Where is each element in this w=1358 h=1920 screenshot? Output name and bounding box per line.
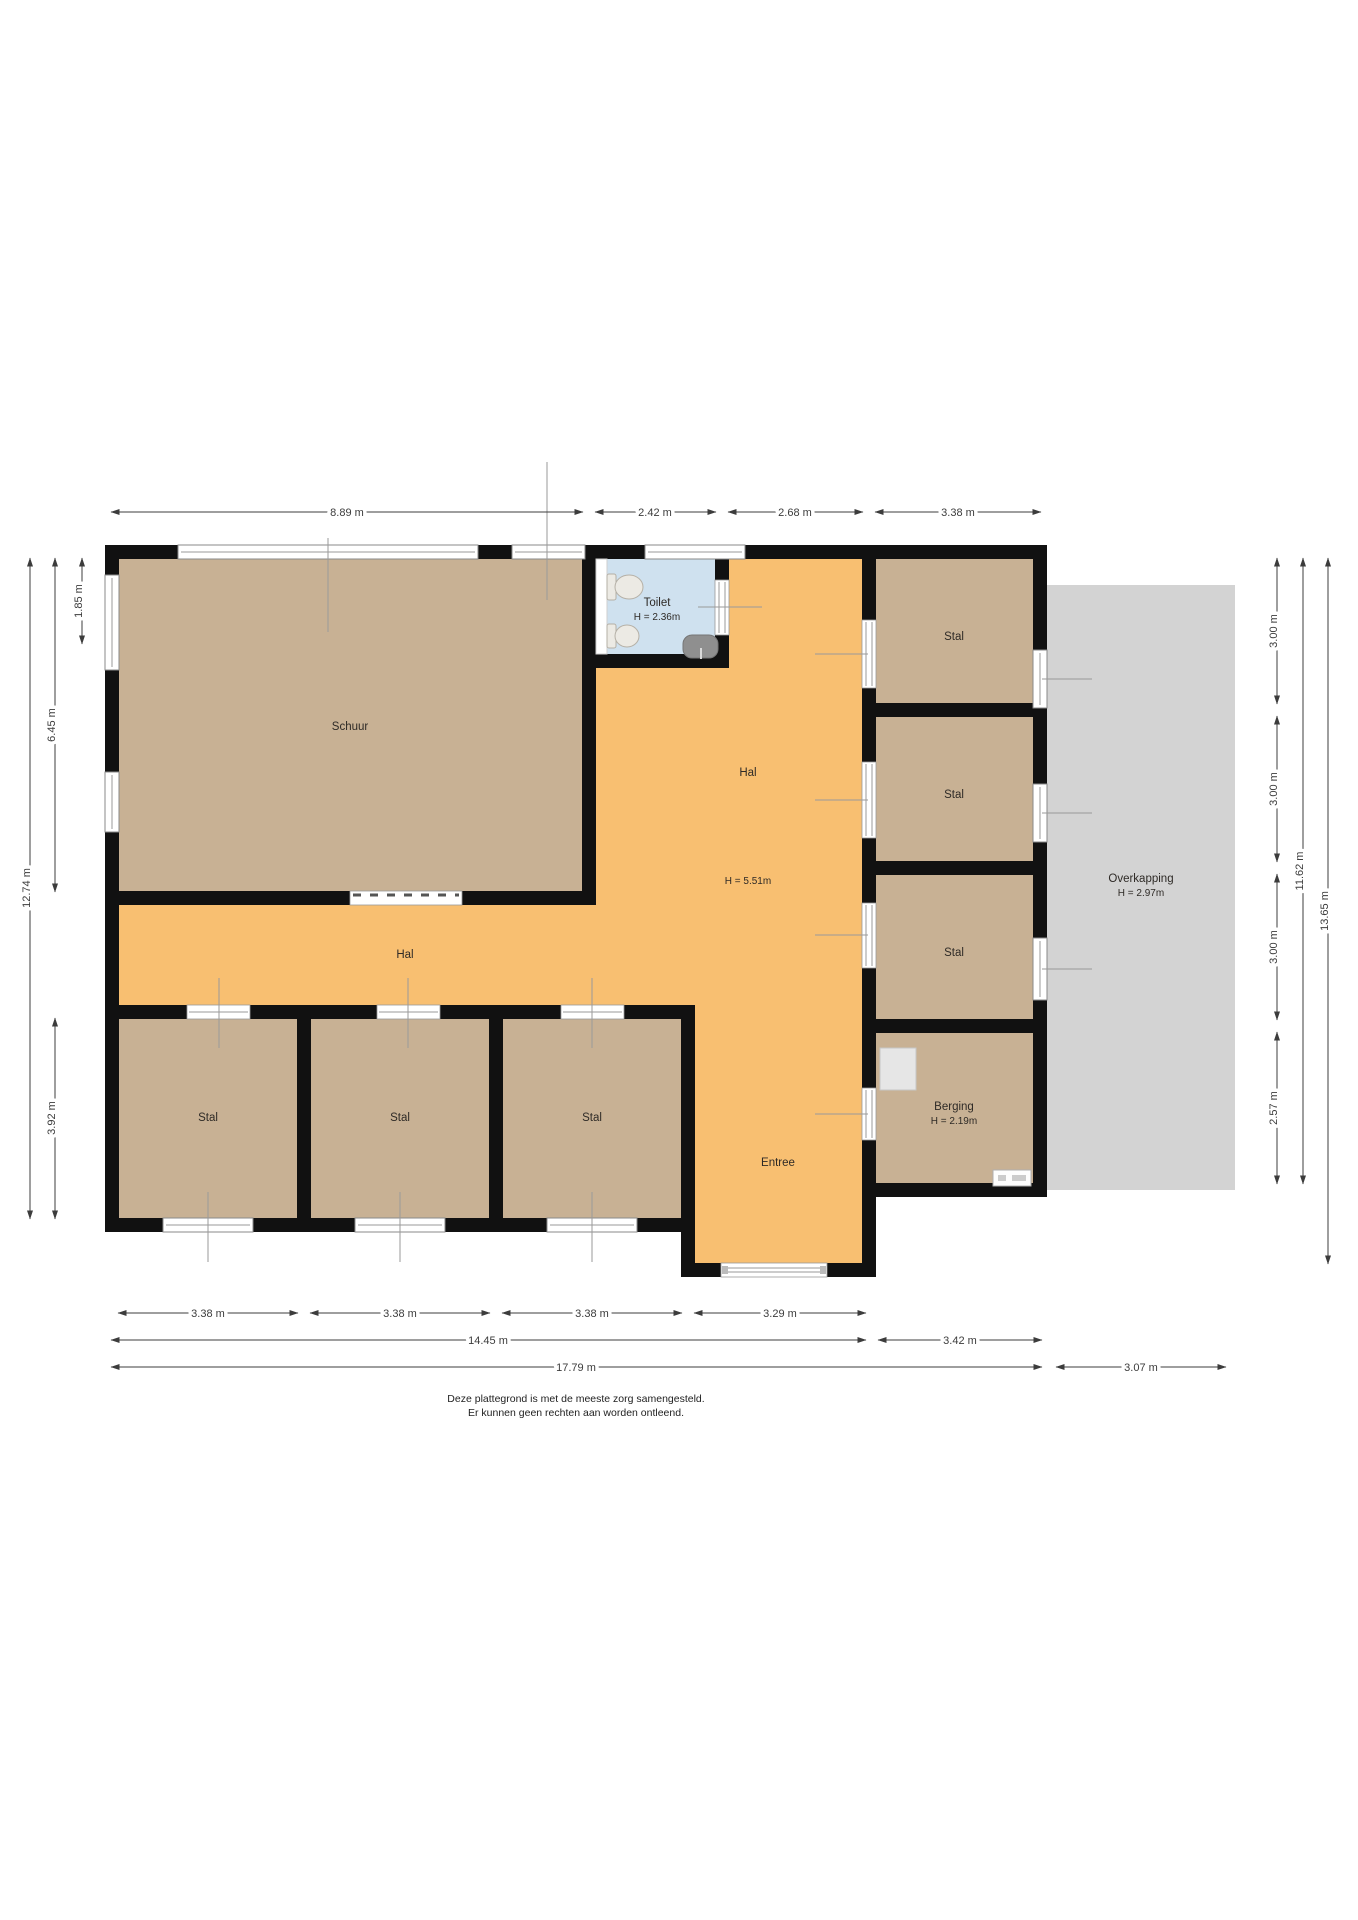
svg-text:13.65 m: 13.65 m [1319, 891, 1331, 931]
svg-text:3.00 m: 3.00 m [1268, 614, 1280, 648]
svg-text:3.38 m: 3.38 m [191, 1308, 225, 1320]
dimension-top: 8.89 m 2.42 m 2.68 m 3.38 m [111, 507, 1041, 519]
dimension-bottom-3: 17.79 m 3.07 m [111, 1362, 1226, 1374]
room-label-toilet: Toilet [644, 597, 672, 609]
svg-text:14.45 m: 14.45 m [468, 1335, 508, 1347]
window [645, 545, 745, 559]
window [105, 772, 119, 832]
door [721, 1263, 827, 1277]
door [350, 891, 462, 905]
dimension-left: 1.85 m 6.45 m 12.74 m 3.92 m [21, 558, 85, 1219]
toilet-icon [607, 624, 639, 648]
svg-text:3.00 m: 3.00 m [1268, 930, 1280, 964]
svg-text:3.00 m: 3.00 m [1268, 772, 1280, 806]
room-label-stal-right-2: Stal [944, 789, 964, 801]
sink-icon [683, 635, 718, 659]
svg-text:6.45 m: 6.45 m [46, 708, 58, 742]
disclaimer-line-2: Er kunnen geen rechten aan worden ontlee… [468, 1407, 684, 1419]
toilet-icon [607, 574, 643, 600]
room-label-hal: Hal [739, 767, 756, 779]
svg-text:2.42 m: 2.42 m [638, 507, 672, 519]
svg-text:3.92 m: 3.92 m [46, 1101, 58, 1135]
svg-text:3.38 m: 3.38 m [383, 1308, 417, 1320]
svg-text:17.79 m: 17.79 m [556, 1362, 596, 1374]
svg-text:3.38 m: 3.38 m [575, 1308, 609, 1320]
svg-text:3.07 m: 3.07 m [1124, 1362, 1158, 1374]
appliance-icon [880, 1048, 916, 1090]
utility-meter-icon [993, 1170, 1031, 1186]
room-label-stal-right-3: Stal [944, 947, 964, 959]
svg-text:2.68 m: 2.68 m [778, 507, 812, 519]
room-label-overkapping: Overkapping [1108, 873, 1173, 885]
floorplan-svg: Schuur Toilet H = 2.36m Hal H = 5.51m Ha… [0, 0, 1358, 1920]
room-label-entree: Entree [761, 1157, 795, 1169]
room-height-toilet: H = 2.36m [634, 612, 680, 623]
dimension-bottom-1: 3.38 m 3.38 m 3.38 m 3.29 m [118, 1308, 866, 1320]
floorplan-page: Schuur Toilet H = 2.36m Hal H = 5.51m Ha… [0, 0, 1358, 1920]
window [105, 575, 119, 670]
svg-text:8.89 m: 8.89 m [330, 507, 364, 519]
room-label-hal-west: Hal [396, 949, 413, 961]
room-label-stal-right-1: Stal [944, 631, 964, 643]
room-height-overkapping: H = 2.97m [1118, 888, 1164, 899]
room-label-stal-bottom-1: Stal [198, 1112, 218, 1124]
room-label-stal-bottom-3: Stal [582, 1112, 602, 1124]
svg-text:11.62 m: 11.62 m [1294, 852, 1306, 891]
room-label-berging: Berging [934, 1101, 974, 1113]
svg-text:3.42 m: 3.42 m [943, 1335, 977, 1347]
toilet-wall-panel [596, 559, 607, 654]
disclaimer-line-1: Deze plattegrond is met de meeste zorg s… [447, 1393, 704, 1405]
room-height-berging: H = 2.19m [931, 1116, 977, 1127]
svg-text:12.74 m: 12.74 m [21, 868, 33, 908]
room-label-stal-bottom-2: Stal [390, 1112, 410, 1124]
room-label-schuur: Schuur [332, 721, 369, 733]
svg-text:3.38 m: 3.38 m [941, 507, 975, 519]
window [512, 545, 585, 559]
svg-text:1.85 m: 1.85 m [73, 584, 85, 618]
room-height-hal: H = 5.51m [725, 876, 771, 887]
dimension-right: 3.00 m 3.00 m 3.00 m 2.57 m 11.62 m 13.6… [1268, 558, 1331, 1264]
dimension-bottom-2: 14.45 m 3.42 m [111, 1335, 1042, 1347]
svg-text:2.57 m: 2.57 m [1268, 1091, 1280, 1125]
svg-text:3.29 m: 3.29 m [763, 1308, 797, 1320]
